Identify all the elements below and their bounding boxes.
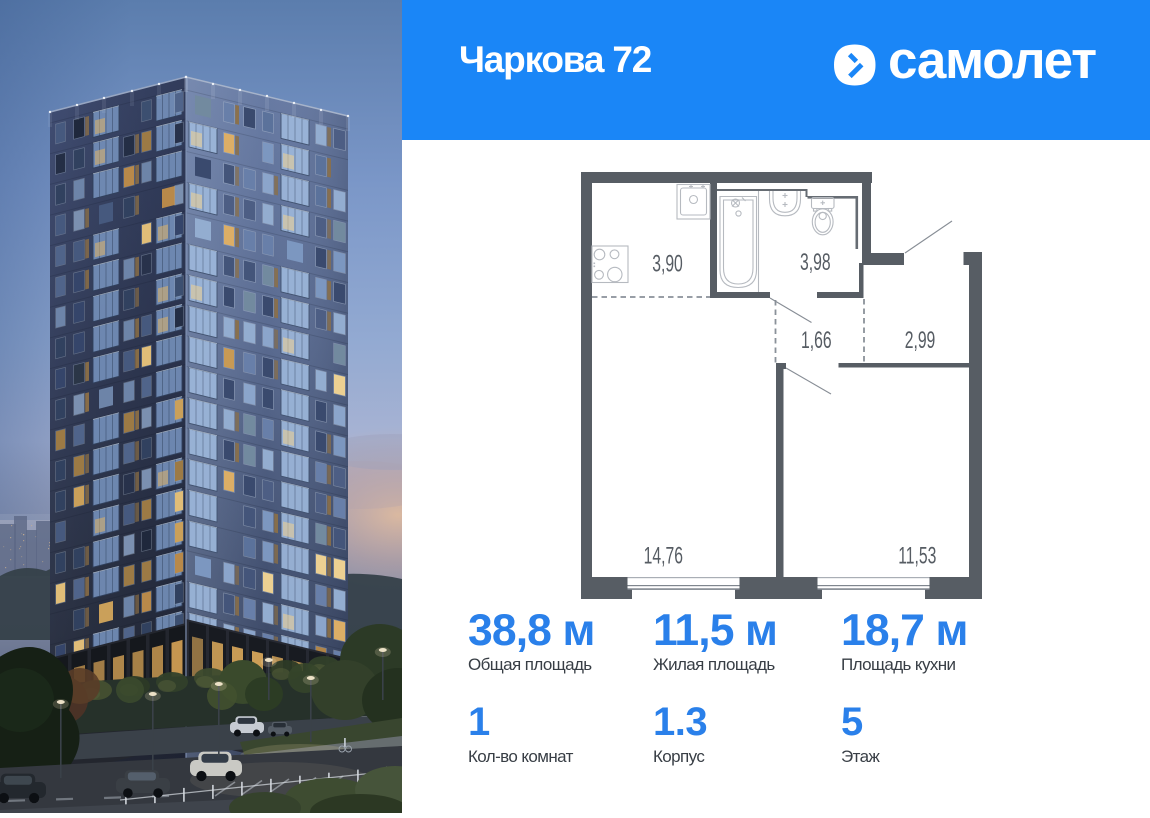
svg-text:1,66: 1,66: [801, 328, 832, 354]
svg-text:14,76: 14,76: [644, 543, 683, 569]
svg-text:11,53: 11,53: [898, 543, 936, 569]
svg-text:3,98: 3,98: [800, 250, 831, 276]
svg-text:3,90: 3,90: [652, 251, 683, 277]
svg-text:2,99: 2,99: [905, 328, 936, 354]
